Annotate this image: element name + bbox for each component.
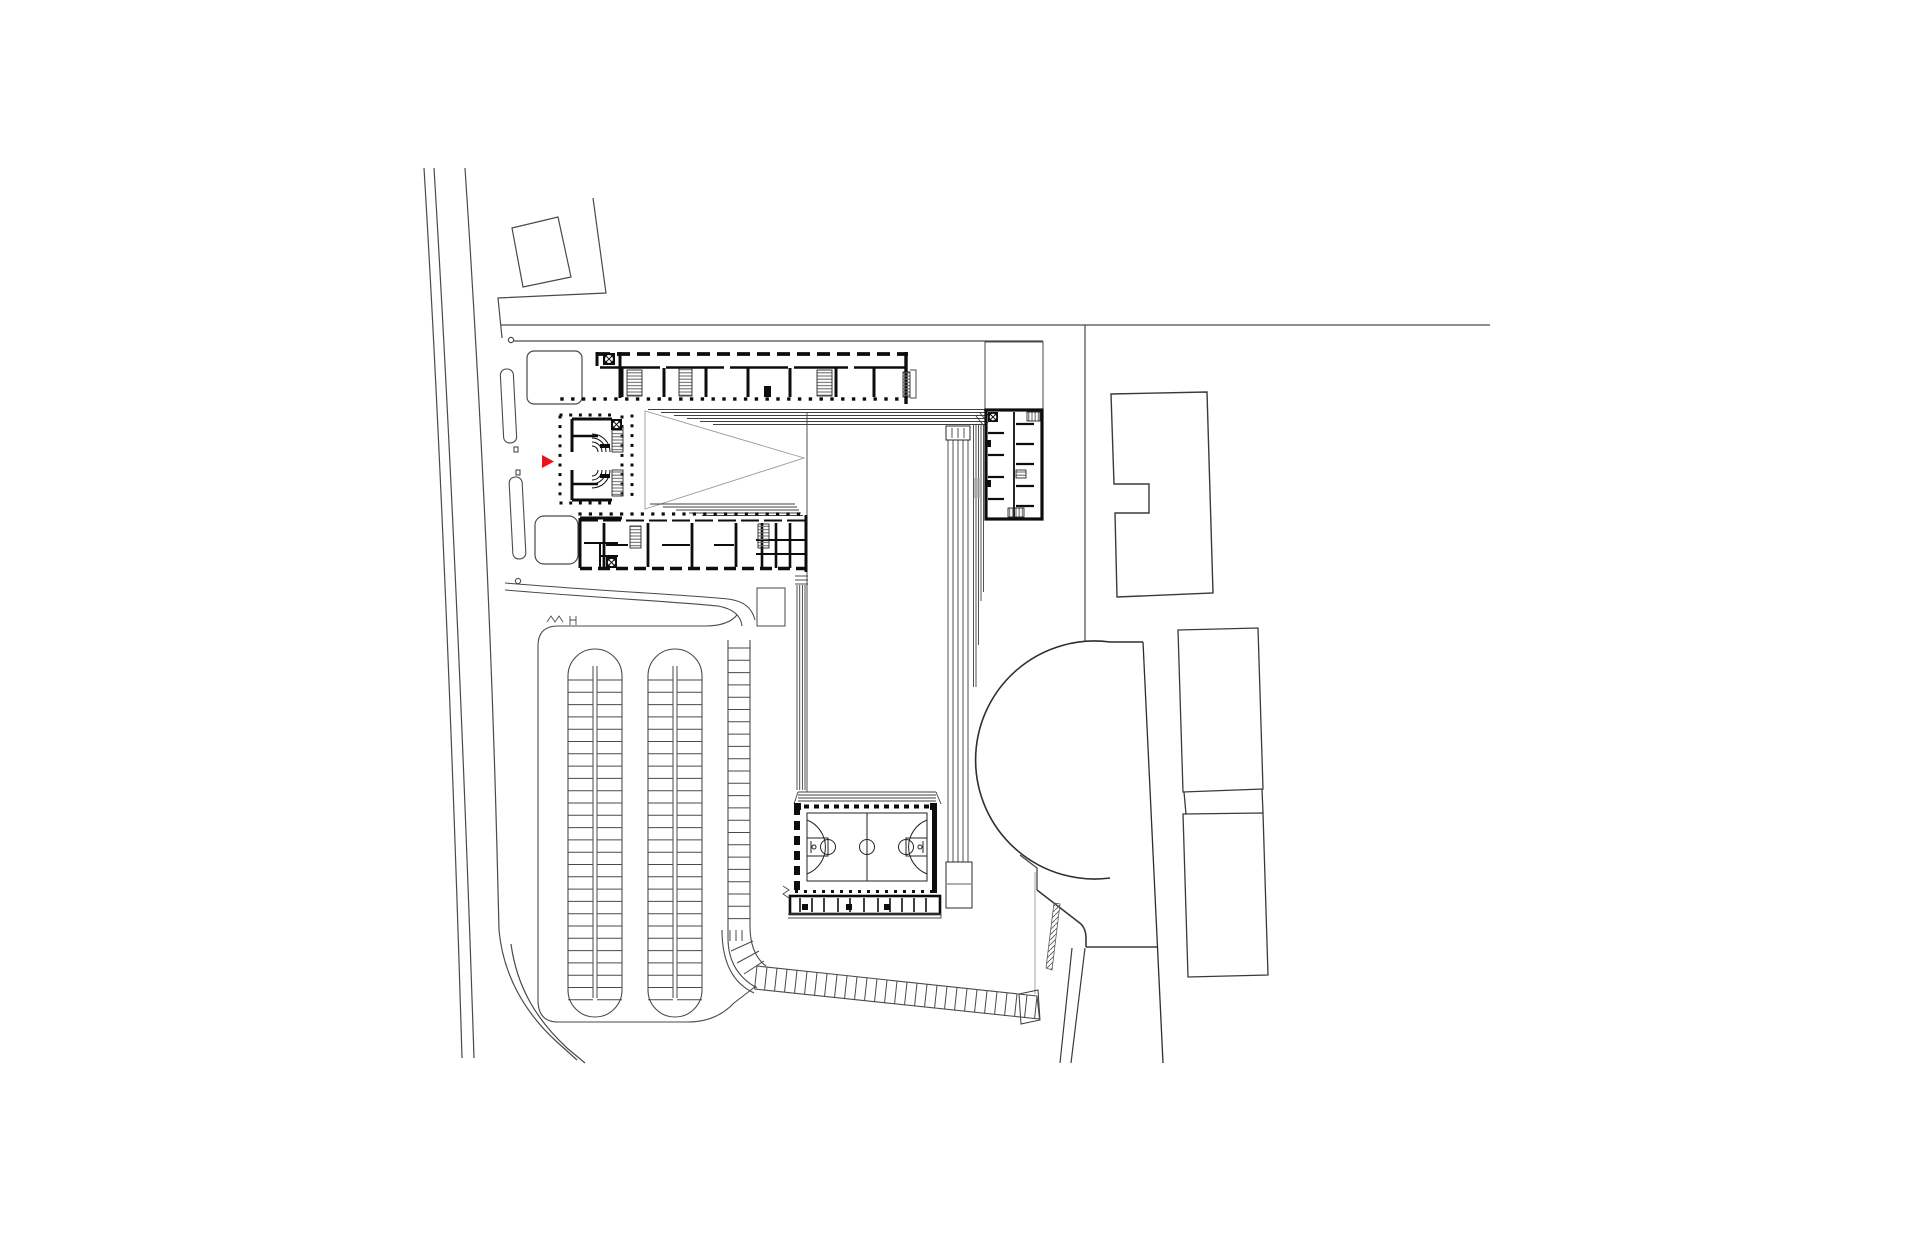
grid-dot (631, 473, 634, 476)
grid-dot (787, 397, 790, 400)
grid-dot (620, 512, 623, 515)
east-slabs (1178, 628, 1268, 977)
boundary-node (508, 337, 513, 342)
stair-hatch (1016, 470, 1026, 478)
grid-dot (621, 454, 624, 457)
grid-dot (636, 397, 639, 400)
grid-dot (598, 414, 601, 417)
hall-roof-bands (795, 412, 986, 862)
grid-dot (722, 397, 725, 400)
grid-dot (651, 512, 654, 515)
walkway-step (775, 968, 777, 991)
southeast-paths (1019, 855, 1157, 1063)
grid-dot (786, 512, 789, 515)
grid-dot (631, 434, 634, 437)
parking-stall (731, 941, 753, 951)
walkway-step (875, 979, 877, 1002)
walkway-step (975, 990, 977, 1013)
grid-dot (733, 397, 736, 400)
walkway-step (965, 989, 967, 1012)
grid-dot (631, 444, 634, 447)
walkway-step (895, 981, 897, 1004)
grid-dot (579, 414, 582, 417)
amphitheatre-arc (976, 641, 1110, 879)
wall-block (802, 904, 808, 910)
grid-dot (582, 397, 585, 400)
column-symbol-icon (988, 412, 998, 422)
grid-dot (631, 483, 634, 486)
grid-dot (599, 512, 602, 515)
column-symbol-icon (606, 557, 617, 568)
grid-dot (604, 397, 607, 400)
drive-line-2 (505, 590, 742, 626)
grid-dot (559, 464, 562, 467)
grid-dot (798, 397, 801, 400)
canopy-triangle (645, 411, 804, 509)
column-symbol-icon (603, 353, 615, 365)
east-slab-1 (1178, 628, 1263, 792)
grid-dot (647, 397, 650, 400)
north-wing-east-contour (910, 370, 916, 398)
grid-dot (744, 397, 747, 400)
grid-dot (631, 415, 634, 418)
grid-dot (559, 473, 562, 476)
walkway-step (905, 982, 907, 1005)
grid-dot (745, 512, 748, 515)
drive-line-1 (505, 583, 755, 620)
building-north-wing (527, 351, 916, 404)
wall-block (764, 386, 771, 397)
grid-dot (630, 512, 633, 515)
walkway-step (915, 983, 917, 1006)
stair-hatch (1008, 508, 1024, 517)
grid-dot (662, 512, 665, 515)
grid-dot (895, 397, 898, 400)
grid-dot (631, 454, 634, 457)
grid-dot (682, 512, 685, 515)
walkway-step (955, 987, 957, 1010)
grid-dot (672, 512, 675, 515)
grid-dot (679, 397, 682, 400)
steps-hatch-diagonal (1046, 903, 1060, 970)
basketball-court-lines (807, 813, 927, 881)
walkway-step (805, 971, 807, 994)
walkway-step (815, 972, 817, 995)
grid-dot (776, 397, 779, 400)
column-grids (559, 397, 899, 515)
grid-dot (559, 444, 562, 447)
grid-dot (863, 397, 866, 400)
lot-gate-mark-h (570, 616, 576, 625)
walkway-step (1035, 996, 1037, 1019)
grid-dot (631, 464, 634, 467)
grid-dot (755, 512, 758, 515)
southwest-annex-outline (535, 516, 578, 564)
grid-dot (593, 397, 596, 400)
east-slab-2 (1183, 813, 1268, 977)
neighbor-parcel-quad (512, 217, 571, 287)
walkway-step (795, 970, 797, 993)
road-west (424, 168, 585, 1063)
column-symbol-icon (611, 419, 622, 430)
grid-dot (841, 397, 844, 400)
stall-row-rail (750, 640, 766, 966)
walkway-step (995, 992, 997, 1015)
grid-dot (589, 512, 592, 515)
grid-dot (571, 397, 574, 400)
grid-dot (559, 435, 562, 438)
amphitheatre-chord (1143, 642, 1163, 1063)
parking-stall (744, 961, 764, 974)
grid-dot (559, 492, 562, 495)
grid-dot (724, 512, 727, 515)
stair-hatch (903, 372, 910, 397)
ramp-arcs-south (592, 470, 610, 488)
wall-block (600, 474, 610, 478)
walkway-step (865, 978, 867, 1001)
grid-dot (621, 416, 624, 419)
walkway-step (885, 980, 887, 1003)
walkway-step (825, 974, 827, 997)
grid-dot (820, 397, 823, 400)
roof-step-grey (974, 478, 982, 498)
grid-dot (559, 454, 562, 457)
courts-block (783, 792, 941, 918)
northwest-annex-outline (527, 351, 582, 404)
grid-dot (559, 425, 562, 428)
grid-dot (625, 397, 628, 400)
building-west-wing (572, 419, 612, 500)
wall-block (986, 480, 991, 487)
walkway-step (1005, 993, 1007, 1016)
south-canopy-outline (757, 588, 785, 626)
grid-dot (569, 502, 572, 505)
courtyard-step-edges (648, 410, 986, 516)
grid-dot (658, 397, 661, 400)
hoop-east (918, 845, 922, 849)
walkway-step (945, 986, 947, 1009)
walkway-step (785, 969, 787, 992)
grid-dot (610, 512, 613, 515)
grid-dot (608, 414, 611, 417)
grid-dot (701, 397, 704, 400)
parking-stall (737, 951, 759, 963)
grid-dot (668, 397, 671, 400)
grid-dot (569, 414, 572, 417)
grid-dot (560, 397, 563, 400)
hoop-west (812, 845, 816, 849)
grid-dot (559, 483, 562, 486)
parking-lot (505, 583, 756, 1022)
grid-dot (776, 512, 779, 515)
entrance-marker-icon (542, 455, 554, 468)
grid-dot (809, 397, 812, 400)
walkway-step (765, 967, 767, 990)
building-east-large (1111, 392, 1213, 597)
wall-block (986, 440, 991, 447)
walkway-step (835, 975, 837, 998)
grid-dot (712, 397, 715, 400)
grid-dot (766, 512, 769, 515)
courtyard-canopy (645, 411, 804, 509)
walkway-steps (755, 966, 1037, 1019)
grid-dot (766, 397, 769, 400)
stair-hatch (679, 368, 692, 396)
kerb-islands (500, 369, 526, 584)
column-symbols (603, 353, 998, 568)
walkway-step (845, 976, 847, 999)
grid-dot (579, 502, 582, 505)
grid-dot (703, 512, 706, 515)
grid-dot (578, 512, 581, 515)
walkway-step (1025, 995, 1027, 1018)
walkway-step (935, 985, 937, 1008)
walkway-step (855, 977, 857, 1000)
grid-dot (797, 512, 800, 515)
walkway-step (925, 984, 927, 1007)
stair-hatch (817, 370, 832, 396)
grid-dot (755, 397, 758, 400)
grid-dot (589, 414, 592, 417)
grid-dot (874, 397, 877, 400)
wall-block (846, 904, 852, 910)
grid-dot (598, 502, 601, 505)
grid-dot (560, 502, 563, 505)
grid-dot (734, 512, 737, 515)
amphitheatre (976, 641, 1163, 1063)
site-plan-drawing (0, 0, 1920, 1260)
lot-gate-mark-w (547, 616, 563, 622)
stair-hatch (630, 526, 641, 548)
walkway-step (755, 966, 757, 989)
walkway-step (985, 991, 987, 1014)
stair-hatch (758, 524, 769, 548)
wall-block (930, 803, 937, 810)
grid-dot (608, 502, 611, 505)
grid-dot (830, 397, 833, 400)
grid-dot (559, 416, 562, 419)
grid-dot (631, 493, 634, 496)
grid-dot (690, 397, 693, 400)
wall-block (600, 444, 610, 448)
stair-hatch (627, 370, 642, 396)
grid-dot (614, 397, 617, 400)
grid-dot (714, 512, 717, 515)
stair-hatch (612, 470, 623, 496)
grid-dot (589, 502, 592, 505)
grid-dot (852, 397, 855, 400)
stair-hatch (1027, 412, 1040, 421)
parking-stalls (568, 640, 766, 1017)
grid-dot (693, 512, 696, 515)
grid-dot (631, 424, 634, 427)
walkway-step (1015, 994, 1017, 1017)
site-plan-page (0, 0, 1920, 1260)
grid-dot (621, 464, 624, 467)
grid-dot (884, 397, 887, 400)
wall-block (884, 904, 890, 910)
wall-block (794, 803, 801, 810)
lot-boundary-bottom (538, 986, 756, 1022)
grid-dot (641, 512, 644, 515)
